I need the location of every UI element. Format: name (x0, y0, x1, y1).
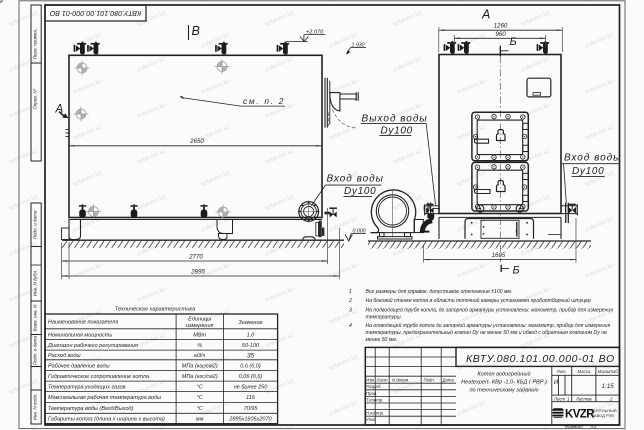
svg-text:измерения: измерения (186, 323, 214, 329)
svg-text:Расход воды: Расход воды (48, 353, 81, 359)
svg-text:температуры, предохранительный: температуры, предохранительный клапан Dу… (366, 329, 608, 336)
svg-text:Heatexpert- КВр -1,0- КБД ( РВ: Heatexpert- КВр -1,0- КБД ( РВР ) (461, 380, 547, 386)
svg-text:Лит.: Лит. (556, 369, 567, 374)
svg-text:Диапазон рабочего регулировани: Диапазон рабочего регулирования (47, 343, 138, 349)
svg-text:Взам. инв. N: Взам. инв. N (32, 304, 37, 331)
svg-text:Т.контр.: Т.контр. (366, 397, 383, 402)
svg-text:На подводящей трубе котла, до: На подводящей трубе котла, до запорной а… (366, 307, 614, 314)
svg-text:N докум.: N докум. (392, 377, 409, 382)
svg-text:%: % (197, 343, 202, 349)
svg-text:А: А (481, 8, 490, 22)
svg-text:Вход воды: Вход воды (564, 153, 622, 164)
svg-text:Номинальная мощность: Номинальная мощность (48, 333, 112, 339)
svg-text:мм: мм (196, 417, 204, 423)
svg-text:Dy100: Dy100 (381, 125, 413, 136)
svg-text:1,0: 1,0 (247, 333, 256, 339)
svg-text:МВт: МВт (193, 333, 206, 339)
svg-text:Рабочее давление воды: Рабочее давление воды (48, 363, 110, 369)
svg-text:Максимальная рабочая температу: Максимальная рабочая температура воды (48, 395, 161, 401)
svg-text:Инв. N дубл.: Инв. N дубл. (32, 270, 37, 297)
svg-text:Dy100: Dy100 (344, 186, 376, 197)
svg-text:м3/ч: м3/ч (194, 353, 205, 359)
svg-text:температуры.: температуры. (366, 314, 403, 320)
svg-text:°С: °С (197, 406, 203, 412)
svg-text:см. п. 2: см. п. 2 (243, 96, 285, 106)
svg-text:Температура уходящих газов: Температура уходящих газов (48, 384, 126, 390)
svg-text:Значение: Значение (238, 320, 262, 326)
svg-text:Утв.: Утв. (366, 417, 376, 422)
svg-text:Перв. примен.: Перв. примен. (32, 29, 37, 60)
svg-text:Все размеры для справок, допус: Все размеры для справок, допустимое откл… (366, 289, 513, 295)
svg-text:Лист: Лист (376, 377, 388, 382)
svg-text:Единицы: Единицы (188, 317, 211, 323)
svg-text:2895: 2895 (190, 268, 205, 275)
svg-text:Изм.: Изм. (366, 377, 375, 382)
svg-text:по техническому заданию: по техническому заданию (469, 388, 539, 394)
svg-text:Б: Б (510, 36, 517, 48)
svg-text:Подп.: Подп. (424, 377, 435, 382)
svg-text:Подп. и дата: Подп. и дата (32, 210, 37, 239)
svg-text:2: 2 (348, 298, 352, 304)
svg-text:0,06 (0,6): 0,06 (0,6) (239, 374, 263, 380)
svg-text:Дата: Дата (442, 377, 455, 382)
svg-text:На боковой стенке котла в обла: На боковой стенке котла в области топочн… (366, 297, 591, 304)
svg-text:Dy100: Dy100 (572, 166, 604, 177)
svg-text:Листов: Листов (575, 396, 592, 401)
svg-text:МПа (кгс/см2): МПа (кгс/см2) (182, 363, 218, 369)
svg-text:В: В (192, 24, 200, 38)
svg-text:Б: Б (513, 265, 520, 277)
svg-text:Котел водогрейный: Котел водогрейный (477, 371, 530, 378)
svg-text:Формат: Формат (565, 424, 583, 429)
svg-text:3: 3 (349, 308, 352, 314)
svg-text:2895х1605х2070: 2895х1605х2070 (228, 417, 272, 423)
svg-text:А3: А3 (590, 424, 597, 429)
svg-text:35: 35 (247, 353, 255, 360)
svg-text:Масштаб: Масштаб (598, 369, 619, 374)
svg-text:0,6 (6,0): 0,6 (6,0) (240, 363, 261, 369)
svg-text:70/95: 70/95 (244, 406, 259, 412)
svg-text:МПа (кгс/см2): МПа (кгс/см2) (182, 374, 218, 380)
svg-text:Подп. и дата: Подп. и дата (32, 336, 37, 365)
svg-text:И: И (554, 380, 559, 386)
svg-text:2770: 2770 (188, 253, 203, 260)
svg-text:+2.070: +2.070 (306, 30, 324, 36)
svg-text:°С: °С (197, 395, 203, 401)
svg-text:4: 4 (349, 323, 352, 329)
svg-text:1: 1 (349, 289, 352, 295)
svg-text:Техническая характеристика: Техническая характеристика (115, 307, 196, 313)
svg-text:1260: 1260 (494, 23, 508, 30)
svg-text:КВТУ.080.101.00.000-01 ВО: КВТУ.080.101.00.000-01 ВО (466, 353, 615, 365)
svg-text:Масса: Масса (577, 369, 590, 374)
svg-text:1:15: 1:15 (602, 383, 615, 390)
svg-text:Справ. N°: Справ. N° (32, 88, 37, 109)
svg-text:115: 115 (246, 395, 256, 401)
svg-text:Инв. N подл.: Инв. N подл. (32, 394, 37, 421)
svg-text:КВТУ.080.101.00.000-01 ВО: КВТУ.080.101.00.000-01 ВО (49, 9, 141, 18)
svg-text:Н.контр.: Н.контр. (366, 411, 384, 416)
svg-text:Наименование показателя: Наименование показателя (48, 320, 118, 326)
svg-text:Габариты котла (длина х ширина: Габариты котла (длина х ширина х высота) (48, 417, 165, 423)
svg-text:2650: 2650 (189, 138, 204, 145)
svg-text:Пров.: Пров. (366, 391, 377, 396)
svg-text:50-100: 50-100 (242, 343, 260, 349)
svg-text:не более 250: не более 250 (234, 384, 269, 390)
svg-text:Выход воды: Выход воды (362, 113, 428, 124)
svg-text:Разраб.: Разраб. (366, 384, 382, 389)
svg-text:ЗАВОД РЭП: ЗАВОД РЭП (592, 413, 615, 418)
svg-text:Лист: Лист (553, 396, 565, 401)
svg-text:Гидравлическое сопротивление к: Гидравлическое сопротивление котла (48, 374, 149, 380)
svg-text:°С: °С (197, 384, 203, 390)
svg-text:Температура воды (Вход/Выход): Температура воды (Вход/Выход) (48, 406, 134, 412)
svg-text:1605: 1605 (492, 252, 506, 259)
svg-text:Вход воды: Вход воды (327, 174, 385, 185)
svg-text:менее 50 мм.: менее 50 мм. (366, 337, 398, 343)
svg-text:На отводящей трубе котла до за: На отводящей трубе котла до запорной арм… (366, 322, 611, 329)
svg-text:960: 960 (495, 31, 506, 38)
